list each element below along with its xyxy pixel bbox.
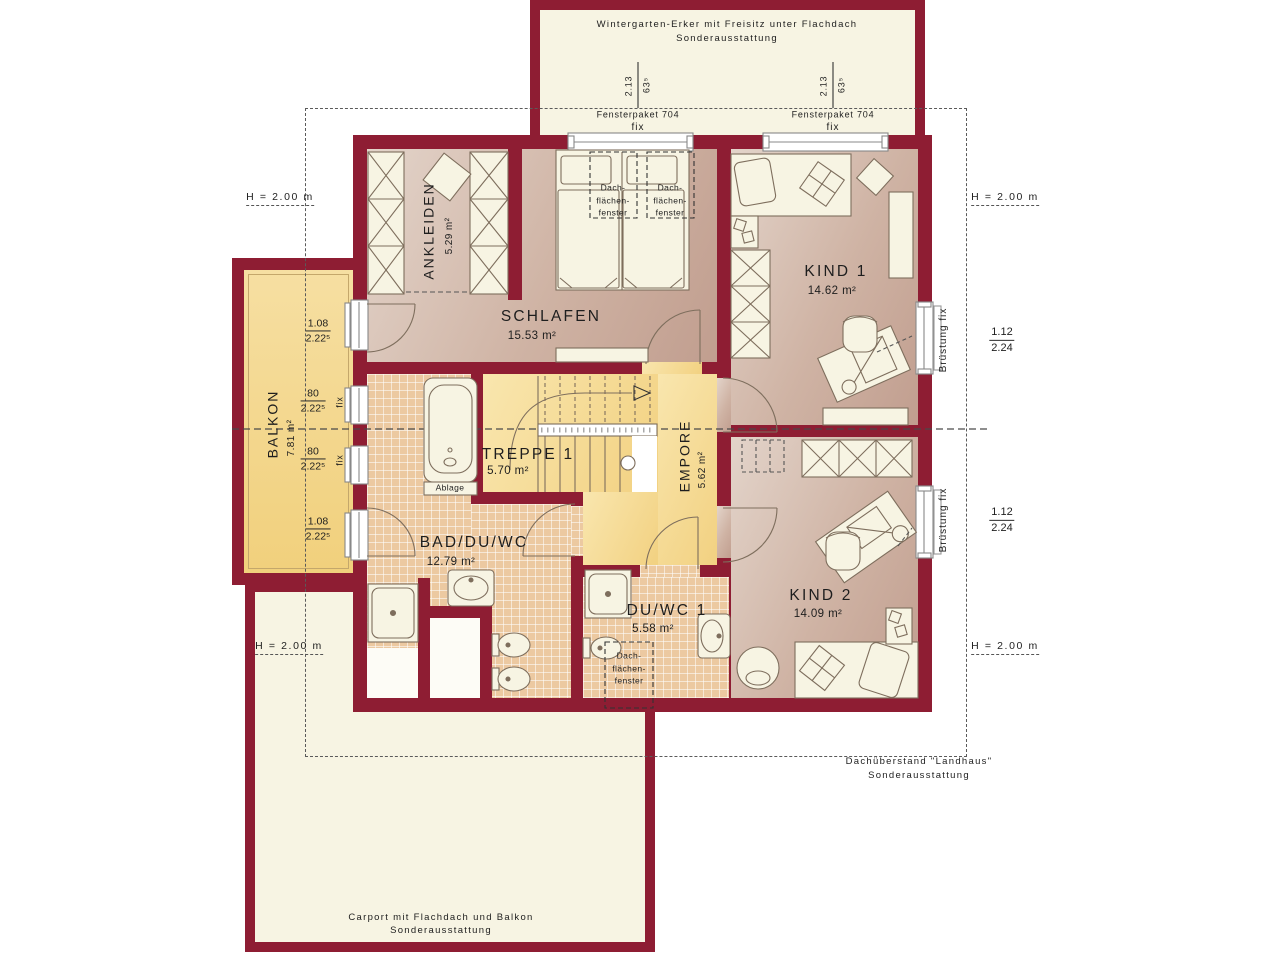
- room-area-ankleiden: 5.29 m²: [445, 218, 456, 255]
- threshold-kind1-door: [717, 378, 731, 432]
- room-area-kind1: 14.62 m²: [808, 285, 857, 297]
- room-area-duwc: 5.58 m²: [632, 623, 674, 635]
- roof-dim-width-2: 63⁵: [837, 77, 846, 93]
- room-label-bad: BAD/DU/WC: [420, 535, 529, 551]
- floor-corridor: [583, 492, 658, 565]
- fix-label-1: fix: [632, 123, 645, 134]
- room-label-ankleiden: ANKLEIDEN: [422, 182, 437, 279]
- carport-note-line1: Carport mit Flachdach und Balkon: [348, 913, 533, 923]
- balkon-fix-1: fix: [335, 396, 344, 407]
- threshold-bad-door: [571, 506, 583, 556]
- room-area-treppe: 5.70 m²: [487, 465, 529, 477]
- roof-window-label-schlafen-1: Dach- flächen- fenster: [596, 181, 629, 219]
- carport-note-line2: Sonderausstattung: [390, 926, 492, 936]
- balkon-dim-3: 80 2.22⁵: [301, 445, 326, 472]
- wintergarten-note-line1: Wintergarten-Erker mit Freisitz unter Fl…: [597, 20, 858, 30]
- ablage-label: Ablage: [436, 484, 465, 493]
- balkon-dim-4: 1.08 2.22⁵: [306, 515, 331, 542]
- height-marker-bottom-right: H = 2.00 m: [971, 641, 1039, 655]
- roof-dim-height-2: 2.13: [819, 76, 828, 97]
- room-area-balkon: 7.81 m²: [287, 420, 298, 457]
- room-area-schlafen: 15.53 m²: [508, 330, 557, 342]
- roof-window-label-duwc: Dach- flächen- fenster: [612, 649, 645, 687]
- fix-label-2: fix: [827, 123, 840, 134]
- threshold-schlafen-empore: [642, 362, 702, 374]
- bruestung-fix-kind2: Brüstung fix: [939, 488, 950, 553]
- roof-dim-height-1: 2.13: [624, 76, 633, 97]
- dachueberstand-note-line2: Sonderausstattung: [868, 771, 970, 781]
- room-label-duwc: DU/WC 1: [627, 603, 708, 619]
- floor-kind2: [731, 437, 918, 698]
- room-area-bad: 12.79 m²: [427, 556, 476, 568]
- room-area-kind2: 14.09 m²: [794, 608, 843, 620]
- wall-bad-niche-v2: [480, 618, 492, 698]
- bruestung-fix-kind1: Brüstung fix: [939, 308, 950, 373]
- floor-plan: Wintergarten-Erker mit Freisitz unter Fl…: [0, 0, 1280, 960]
- wintergarten-note-line2: Sonderausstattung: [676, 34, 778, 44]
- height-marker-top-left: H = 2.00 m: [246, 192, 314, 206]
- room-label-schlafen: SCHLAFEN: [501, 309, 601, 325]
- roof-dim-width-1: 63⁵: [642, 77, 651, 93]
- kind1-window-dim: 1.12 2.24: [989, 326, 1014, 354]
- niche-bad-left: [367, 648, 418, 698]
- wall-ankleiden-schlafen: [508, 149, 522, 300]
- wall-bad-niche-h1: [430, 606, 492, 618]
- fensterpaket-label-2: Fensterpaket 704: [792, 110, 875, 119]
- balkon-fix-2: fix: [335, 454, 344, 465]
- wall-bad-niche-v1: [418, 578, 430, 698]
- balkon-dim-2: 80 2.22⁵: [301, 387, 326, 414]
- roof-window-label-schlafen-2: Dach- flächen- fenster: [653, 181, 686, 219]
- height-marker-top-right: H = 2.00 m: [971, 192, 1039, 206]
- height-marker-bottom-left: H = 2.00 m: [255, 641, 323, 655]
- threshold-kind2-door: [717, 506, 731, 558]
- niche-bad-mid: [430, 618, 480, 698]
- room-label-kind1: KIND 1: [804, 264, 867, 280]
- room-label-empore: EMPORE: [678, 420, 693, 493]
- room-label-treppe: TREPPE 1: [482, 447, 575, 463]
- threshold-duwc-door: [640, 565, 700, 577]
- dachueberstand-note-line1: Dachüberstand "Landhaus": [846, 757, 993, 767]
- room-label-balkon: BALKON: [266, 390, 281, 459]
- balkon-dim-1: 1.08 2.22⁵: [306, 317, 331, 344]
- fensterpaket-label-1: Fensterpaket 704: [597, 110, 680, 119]
- kind2-window-dim: 1.12 2.24: [989, 506, 1014, 534]
- floor-duwc: [583, 577, 729, 698]
- room-area-empore: 5.62 m²: [698, 452, 709, 489]
- room-label-kind2: KIND 2: [789, 588, 852, 604]
